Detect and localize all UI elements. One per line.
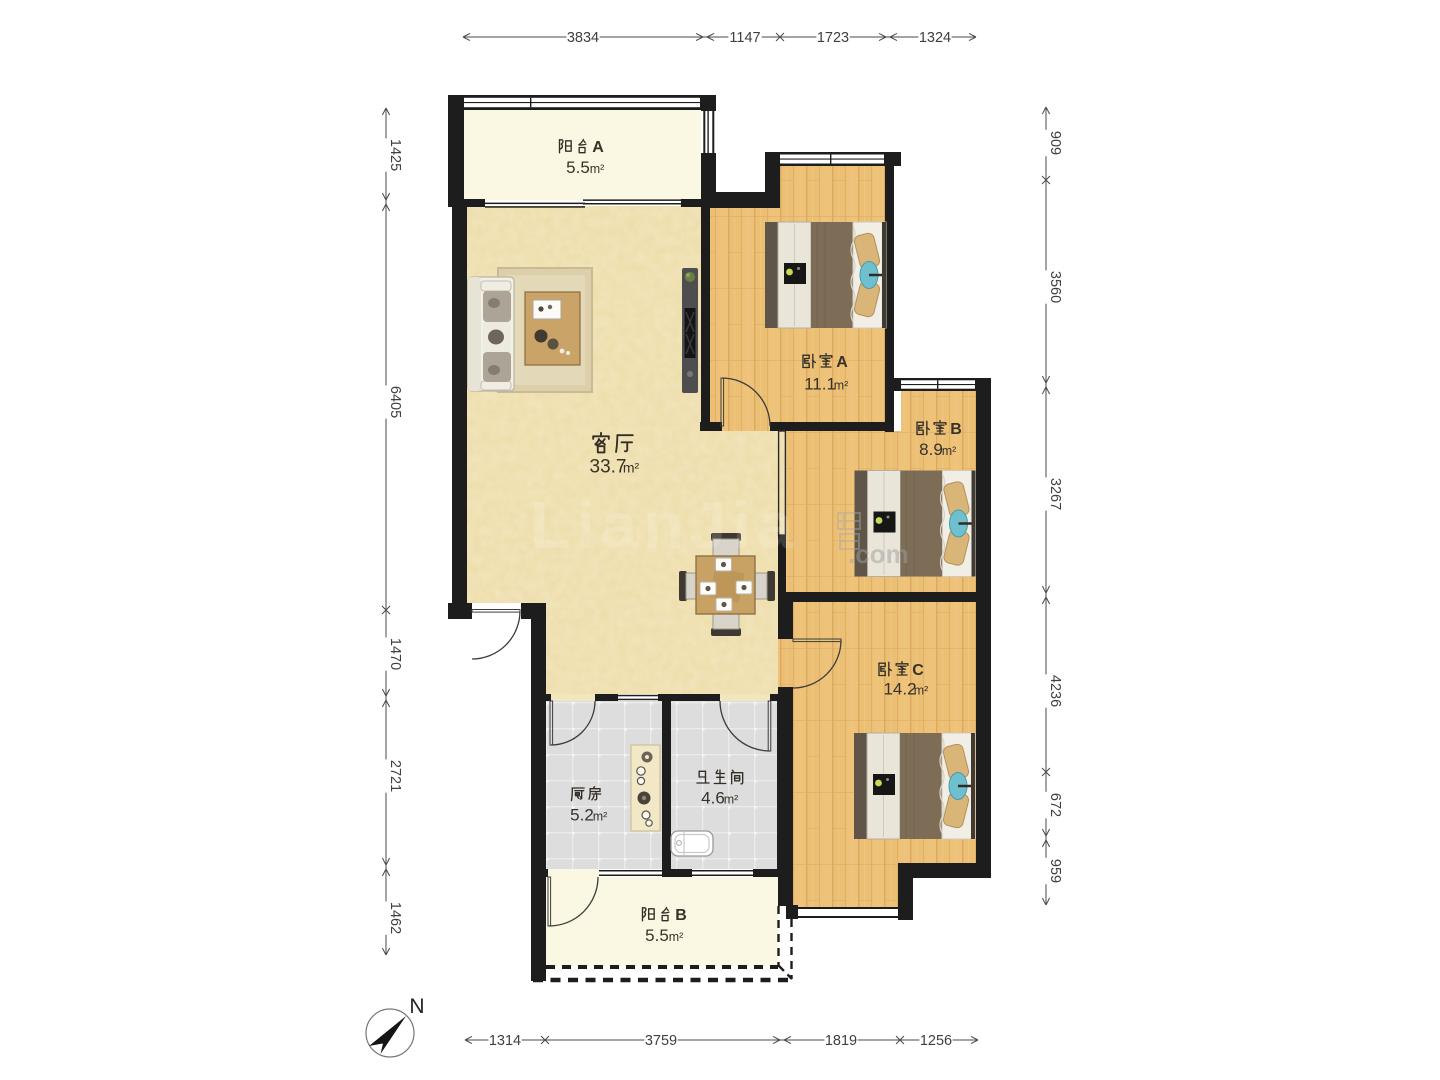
svg-text:B: B	[950, 421, 962, 438]
svg-text:1470: 1470	[387, 638, 403, 670]
svg-text:m²: m²	[623, 460, 640, 476]
svg-text:5.5: 5.5	[566, 158, 590, 177]
svg-text:A: A	[836, 354, 848, 371]
svg-text:3834: 3834	[567, 30, 599, 46]
svg-text:6405: 6405	[387, 386, 403, 418]
svg-text:1462: 1462	[387, 902, 403, 934]
svg-text:2721: 2721	[387, 760, 403, 792]
svg-text:33.7: 33.7	[590, 457, 627, 478]
svg-text:4236: 4236	[1047, 675, 1063, 707]
svg-text:1723: 1723	[817, 30, 849, 46]
svg-text:11.1: 11.1	[804, 375, 836, 394]
svg-text:909: 909	[1047, 131, 1063, 155]
svg-text:B: B	[675, 907, 687, 924]
svg-text:1819: 1819	[825, 1033, 857, 1049]
svg-text:m²: m²	[834, 379, 849, 393]
svg-text:m²: m²	[669, 930, 684, 944]
svg-text:1147: 1147	[729, 30, 760, 46]
svg-text:m²: m²	[942, 444, 957, 458]
svg-text:LianJia: LianJia	[530, 488, 799, 562]
svg-text:m²: m²	[914, 684, 929, 698]
svg-text:A: A	[592, 139, 604, 156]
svg-text:C: C	[912, 662, 924, 679]
svg-text:3759: 3759	[645, 1033, 677, 1049]
svg-text:m²: m²	[724, 793, 739, 807]
svg-text:1314: 1314	[489, 1033, 521, 1049]
svg-text:5.5: 5.5	[645, 926, 669, 945]
svg-text:3267: 3267	[1047, 478, 1063, 510]
svg-text:672: 672	[1047, 793, 1063, 817]
svg-text:.com: .com	[848, 539, 909, 569]
svg-text:N: N	[409, 995, 424, 1018]
svg-text:1324: 1324	[919, 30, 951, 46]
svg-text:3560: 3560	[1047, 271, 1063, 303]
svg-text:8.9: 8.9	[919, 440, 943, 459]
svg-text:1256: 1256	[920, 1033, 952, 1049]
svg-text:4.6: 4.6	[701, 789, 725, 808]
svg-text:14.2: 14.2	[883, 680, 916, 699]
svg-text:m²: m²	[590, 162, 605, 176]
svg-text:5.2: 5.2	[570, 806, 594, 825]
svg-text:959: 959	[1047, 859, 1063, 883]
svg-text:m²: m²	[593, 810, 608, 824]
svg-text:1425: 1425	[387, 139, 403, 171]
